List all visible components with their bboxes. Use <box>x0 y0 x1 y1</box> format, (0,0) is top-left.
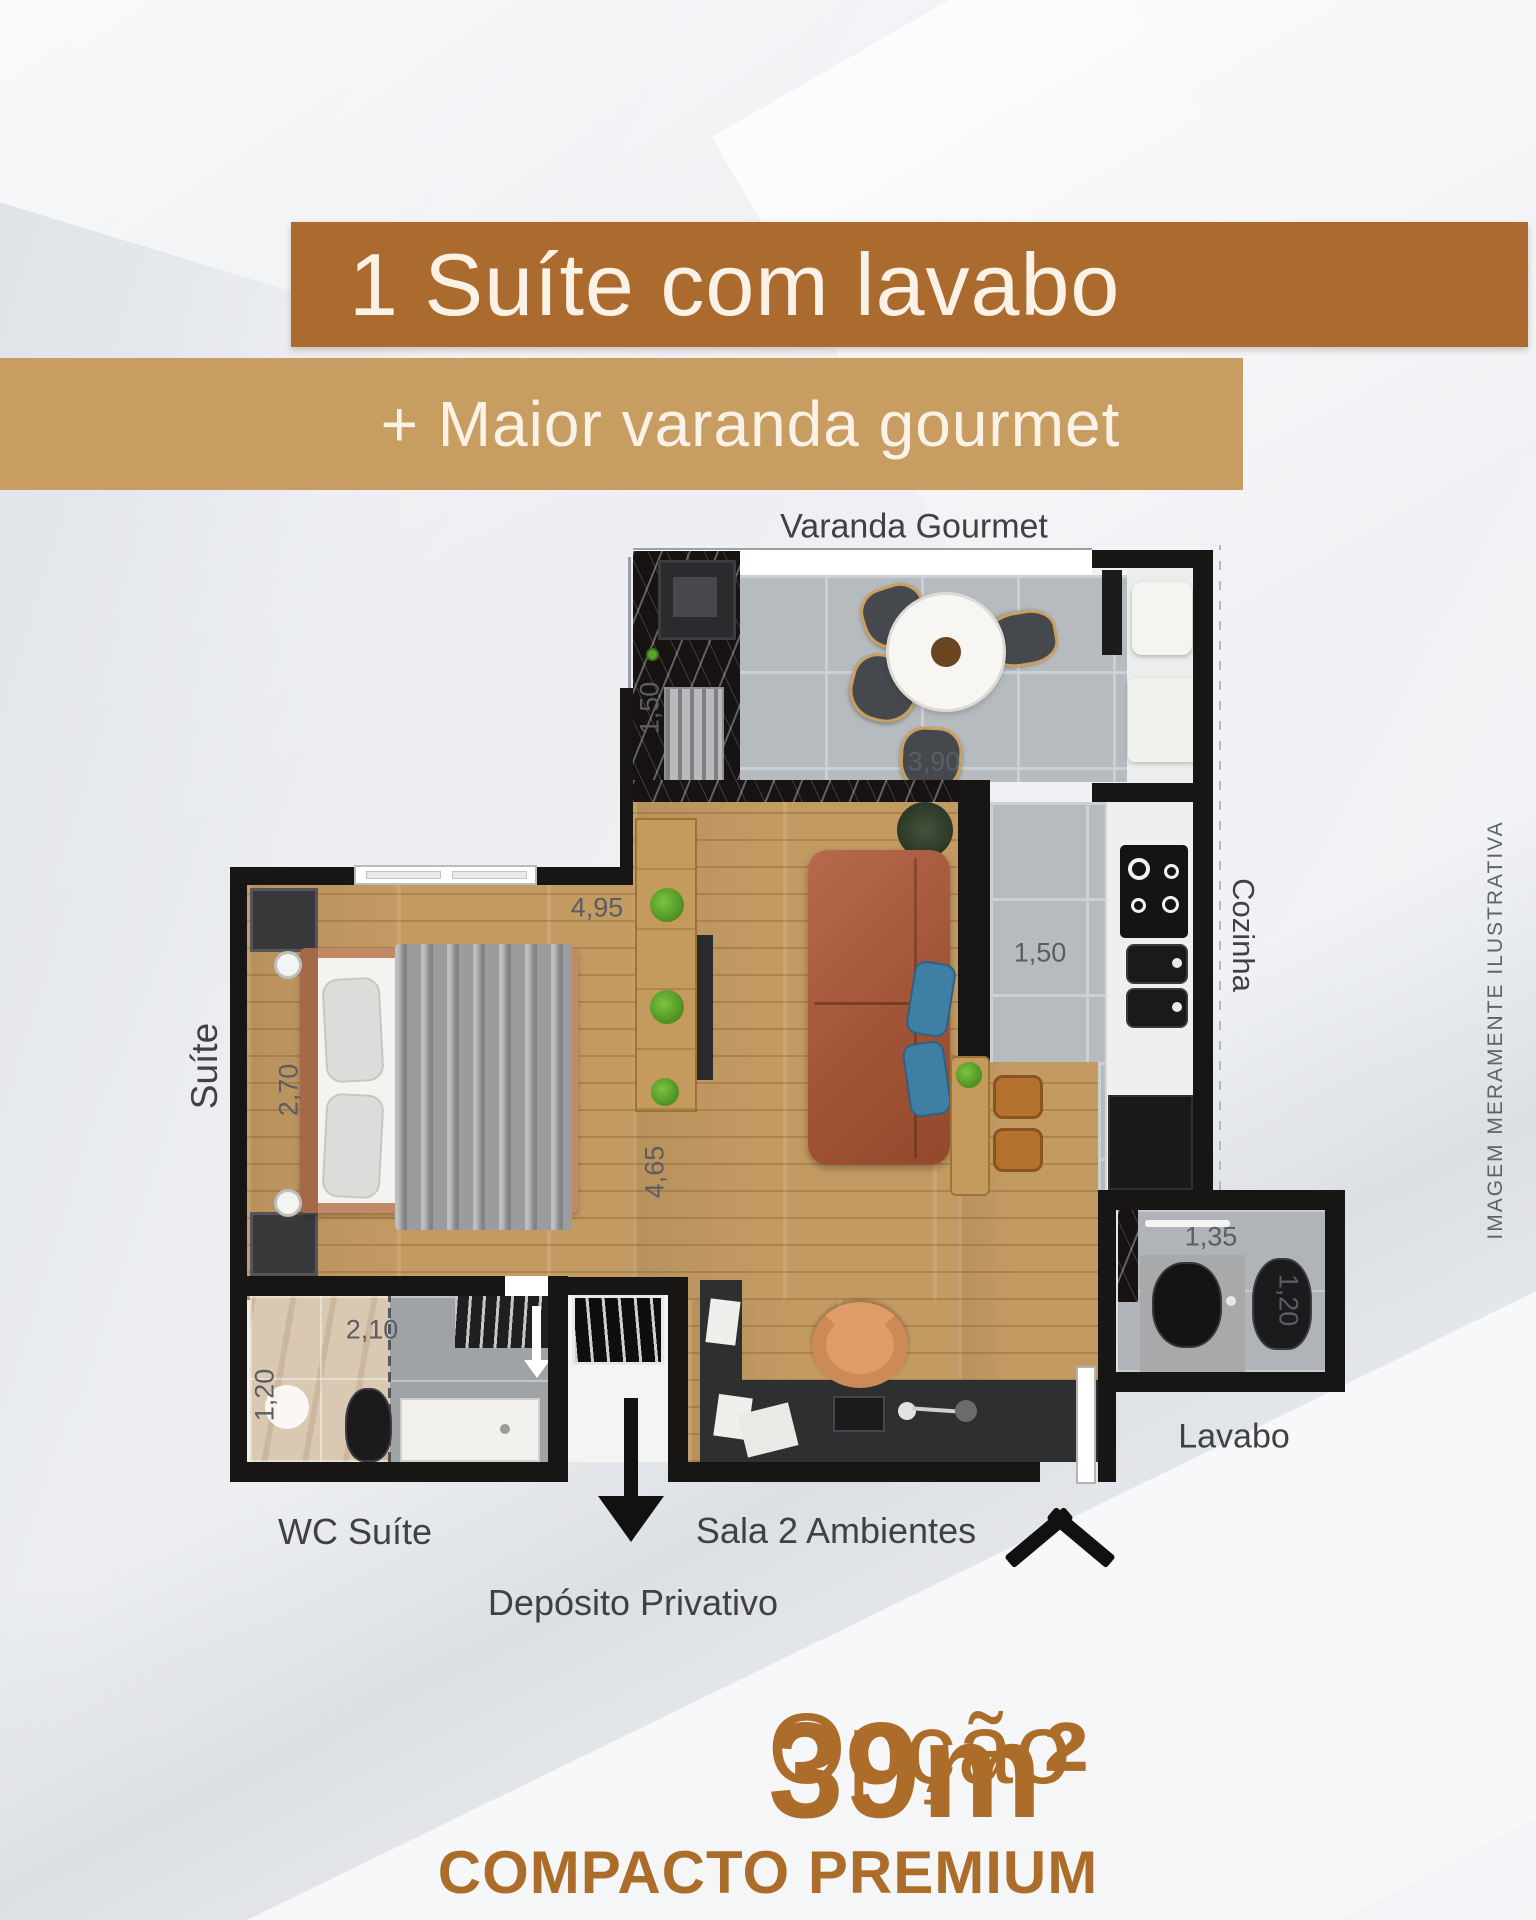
wc-door-arrow-head <box>524 1360 550 1378</box>
dim-cozinha: 1,50 <box>1014 938 1067 969</box>
shelf-plant <box>650 888 684 922</box>
dim-suite-width: 4,95 <box>571 893 624 924</box>
wall <box>620 688 633 868</box>
entry-door <box>1076 1366 1096 1484</box>
deposito-contents <box>572 1295 664 1365</box>
lavabo-sink <box>1152 1262 1222 1348</box>
dim-wc-depth: 1,20 <box>250 1369 281 1422</box>
label-wc-suite: WC Suíte <box>278 1511 432 1553</box>
dim-lavabo-width: 1,35 <box>1185 1222 1238 1253</box>
desk-lamp <box>898 1402 916 1420</box>
wall <box>1098 1190 1345 1210</box>
desk-lamp-head <box>955 1400 977 1422</box>
bedside-lamp <box>274 1189 302 1217</box>
label-deposito: Depósito Privativo <box>488 1582 778 1624</box>
laptop <box>833 1396 885 1432</box>
tv-panel <box>697 935 713 1080</box>
window-pane <box>452 871 527 879</box>
suite-door-gap <box>505 1276 548 1296</box>
wall <box>1092 783 1213 803</box>
wall <box>548 1277 568 1482</box>
office-chair <box>812 1302 908 1388</box>
wall <box>230 867 247 1482</box>
primary-banner-text: 1 Suíte com lavabo <box>349 234 1120 336</box>
dim-sala-depth: 4,65 <box>640 1146 671 1199</box>
window-pane <box>366 871 441 879</box>
wall <box>958 780 990 1062</box>
nightstand <box>250 1212 318 1276</box>
bedside-lamp <box>274 951 302 979</box>
dim-lavabo-depth: 1,20 <box>1273 1274 1304 1327</box>
stool <box>993 1075 1043 1119</box>
bbq-grill <box>664 687 724 790</box>
wc-faucet <box>500 1424 510 1434</box>
peninsula-plant <box>956 1062 982 1088</box>
wall <box>1098 1190 1116 1482</box>
shelf-plant <box>651 1078 679 1106</box>
label-varanda: Varanda Gourmet <box>780 508 1048 547</box>
shelf-plant <box>650 990 684 1024</box>
secondary-banner: + Maior varanda gourmet <box>0 358 1243 490</box>
wall <box>668 1277 688 1482</box>
bed-pillow <box>321 977 384 1084</box>
wall-marble <box>633 780 958 802</box>
wall <box>1193 550 1213 1193</box>
label-sala: Sala 2 Ambientes <box>696 1510 976 1552</box>
faucet <box>1172 958 1182 968</box>
primary-banner: 1 Suíte com lavabo <box>291 222 1528 347</box>
plant-dot <box>646 648 659 661</box>
dim-wc-width: 2,10 <box>346 1315 399 1346</box>
stool <box>993 1128 1043 1172</box>
stove-cooktop <box>1120 845 1188 938</box>
dim-varanda-depth: 1,50 <box>635 682 666 735</box>
varanda-rail <box>628 557 631 690</box>
disclaimer-text: IMAGEM MERAMENTE ILUSTRATIVA <box>1484 820 1508 1239</box>
wall <box>230 867 354 885</box>
bench-pillows <box>1132 582 1192 655</box>
label-suite: Suíte <box>184 1023 226 1109</box>
desk-papers <box>705 1298 740 1345</box>
bed-blanket <box>395 944 572 1230</box>
dim-suite-depth: 2,70 <box>274 1064 305 1117</box>
bed-pillow <box>321 1093 384 1200</box>
divider-shelf <box>635 818 697 1112</box>
wall <box>230 1462 568 1482</box>
wc-toilet <box>345 1388 392 1462</box>
varanda-cabinet <box>1102 570 1122 655</box>
bench-lounger <box>1128 678 1198 762</box>
faucet <box>1172 1002 1182 1012</box>
flyer-canvas: 1 Suíte com lavabo + Maior varanda gourm… <box>0 0 1536 1920</box>
lavabo-faucet <box>1226 1296 1236 1306</box>
burner <box>1162 896 1179 913</box>
dim-varanda-width: 3,90 <box>908 747 961 778</box>
coffee-machine <box>658 560 736 640</box>
wall <box>537 867 633 885</box>
area-value: 39m² <box>768 1692 1090 1848</box>
kitchen-floor <box>990 802 1105 1062</box>
lavabo-marble <box>1118 1210 1138 1302</box>
deposito-arrow <box>624 1398 638 1498</box>
burner <box>1164 864 1179 879</box>
label-cozinha: Cozinha <box>1225 878 1261 992</box>
burner <box>1131 898 1146 913</box>
entry-chevron <box>1046 1507 1115 1569</box>
burner <box>1128 858 1150 880</box>
dining-table <box>889 595 1003 709</box>
deposito-arrow-head <box>598 1496 664 1542</box>
wall <box>548 1277 688 1295</box>
wall <box>1325 1190 1345 1392</box>
wall <box>688 1462 1040 1482</box>
label-lavabo: Lavabo <box>1178 1418 1290 1457</box>
wc-door-arrow <box>532 1306 541 1362</box>
wc-vanity <box>400 1398 540 1462</box>
tier-title: COMPACTO PREMIUM <box>438 1838 1098 1907</box>
nightstand <box>250 888 318 952</box>
property-dash-line <box>1219 545 1221 1190</box>
fridge <box>1108 1095 1193 1190</box>
secondary-banner-text: + Maior varanda gourmet <box>381 387 1121 461</box>
wall <box>1098 1372 1345 1392</box>
